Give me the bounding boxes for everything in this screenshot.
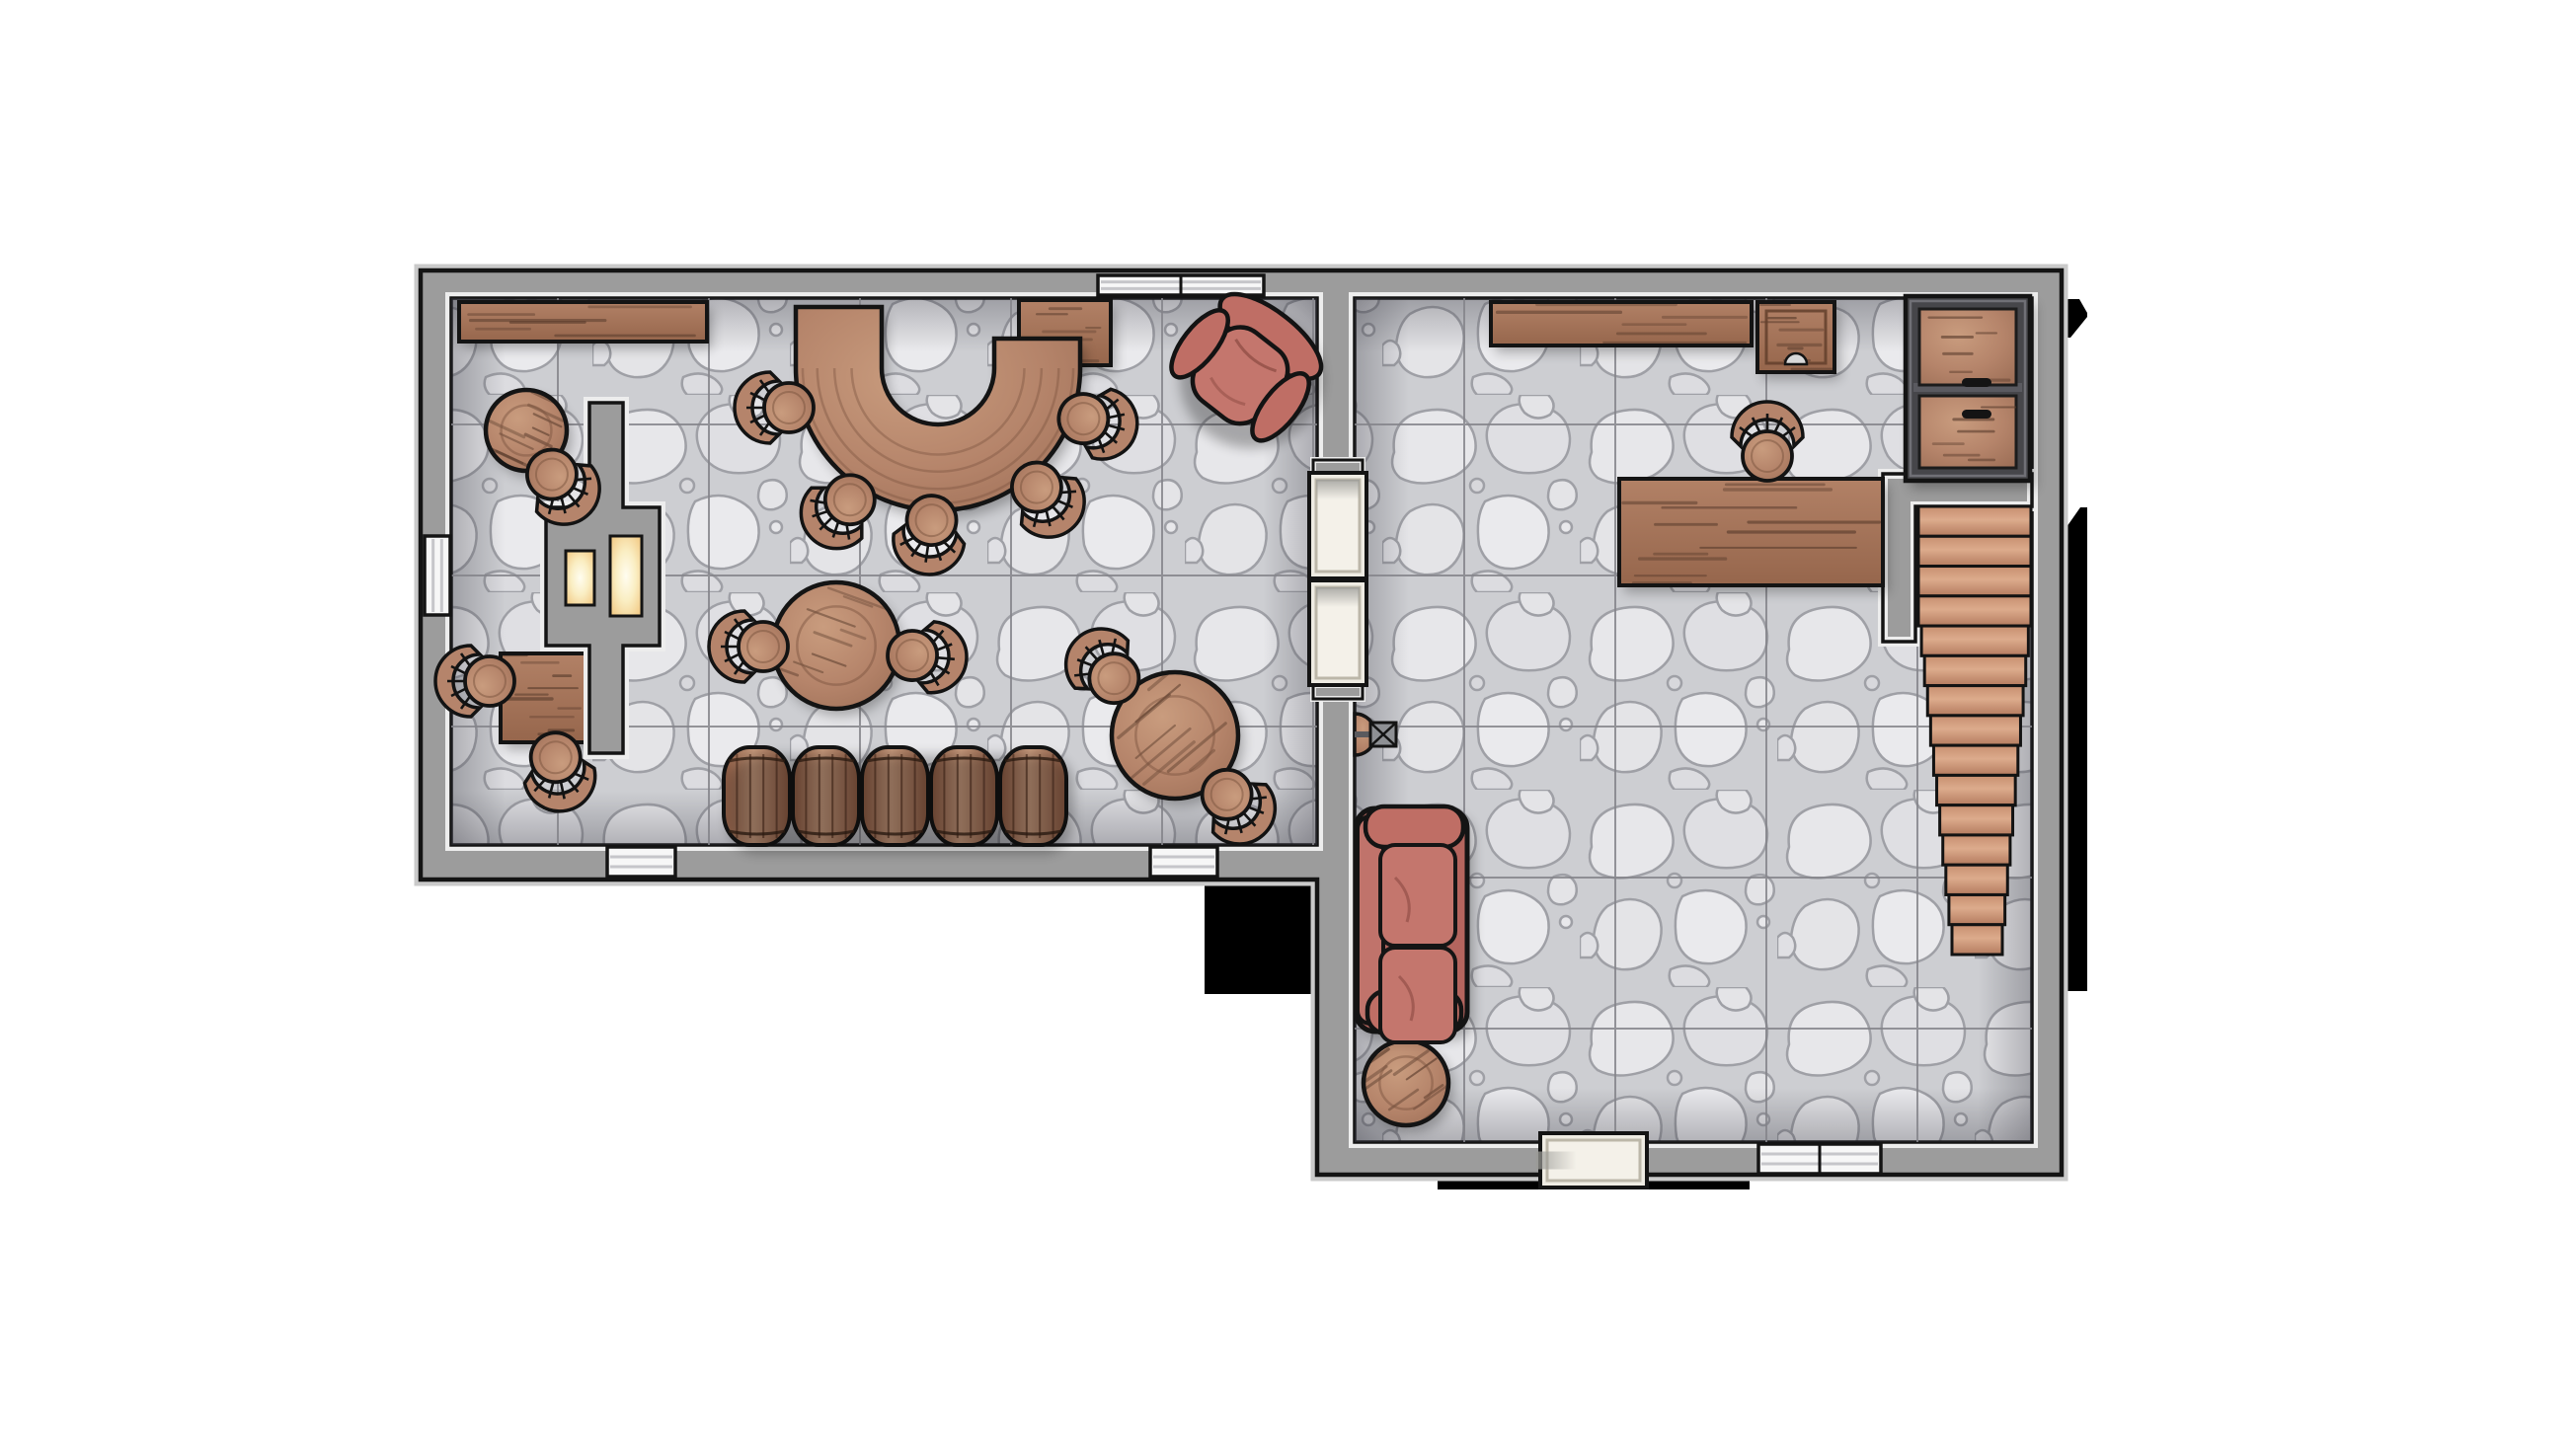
shadow-east-lower bbox=[2067, 507, 2087, 991]
window-south-right bbox=[1758, 1144, 1881, 1174]
double-door-panel-north bbox=[1309, 473, 1366, 578]
stair-tread bbox=[1930, 716, 2020, 745]
desk bbox=[1619, 479, 1883, 585]
window-south-left bbox=[607, 847, 675, 877]
square-table bbox=[501, 653, 589, 742]
wall-counter-right bbox=[1491, 302, 1752, 345]
shadow-east-upper bbox=[2066, 299, 2087, 338]
door-post bbox=[1313, 685, 1363, 699]
stair-tread bbox=[1940, 805, 2013, 835]
stair-tread bbox=[1918, 506, 2031, 536]
wall-counter-left bbox=[459, 302, 707, 342]
stair-tread bbox=[1927, 686, 2023, 716]
stair-tread bbox=[1933, 745, 2017, 775]
stair-tread bbox=[1918, 596, 2031, 626]
stair-tread bbox=[1918, 567, 2031, 596]
shadow-below-tavern bbox=[1205, 879, 1319, 994]
stair-tread bbox=[1946, 865, 2007, 894]
double-door-panel-south bbox=[1309, 580, 1366, 685]
window-west bbox=[425, 536, 450, 615]
stair-tread bbox=[1918, 536, 2031, 566]
south-door bbox=[1536, 1133, 1648, 1188]
hearth-glow-left bbox=[566, 551, 594, 605]
stair-tread bbox=[1921, 626, 2028, 655]
stair-tread bbox=[1937, 775, 2016, 805]
stair-tread bbox=[1949, 894, 2005, 924]
stair-tread bbox=[1952, 925, 2002, 955]
tavern-battlemap-canvas bbox=[0, 0, 2574, 1456]
hearth-glow-right bbox=[610, 536, 642, 616]
couch bbox=[1356, 806, 1467, 1042]
window-south-mid bbox=[1150, 847, 1217, 877]
crate bbox=[1757, 302, 1834, 372]
stair-tread bbox=[1943, 835, 2010, 865]
dresser bbox=[1906, 296, 2030, 481]
tavern-battlemap bbox=[0, 0, 2574, 1456]
stair-tread bbox=[1924, 655, 2026, 685]
